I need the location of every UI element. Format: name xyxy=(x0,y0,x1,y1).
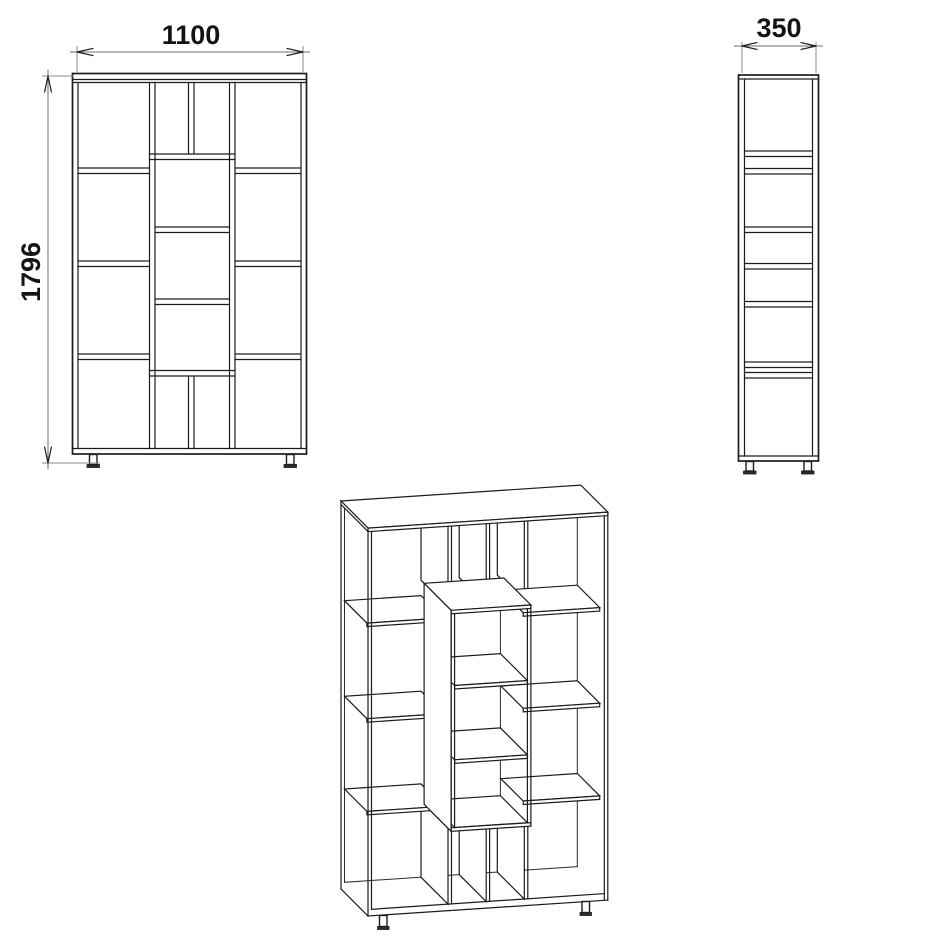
side-shelf-edges xyxy=(745,151,813,378)
front-legs xyxy=(87,455,297,468)
front-carcass xyxy=(73,74,307,455)
width-dimension: 1100 xyxy=(70,20,310,72)
front-right-shelves xyxy=(235,168,301,360)
side-legs xyxy=(744,462,815,475)
depth-dimension-label: 350 xyxy=(756,13,801,43)
front-center-box xyxy=(150,154,236,376)
front-dividers xyxy=(150,83,236,449)
iso-view xyxy=(341,485,608,929)
depth-dimension: 350 xyxy=(734,13,823,73)
technical-drawing-canvas: 1100 1796 xyxy=(0,0,950,950)
iso-right-shelves xyxy=(501,585,600,804)
front-left-shelves xyxy=(78,168,150,360)
width-dimension-label: 1100 xyxy=(162,20,221,50)
drawing-sheet: 1100 1796 xyxy=(0,0,950,950)
height-dimension: 1796 xyxy=(16,70,100,469)
side-carcass xyxy=(739,75,819,461)
height-dimension-label: 1796 xyxy=(16,242,46,302)
iso-legs xyxy=(378,902,592,930)
side-view: 350 xyxy=(734,13,823,474)
front-view: 1100 1796 xyxy=(16,20,310,469)
